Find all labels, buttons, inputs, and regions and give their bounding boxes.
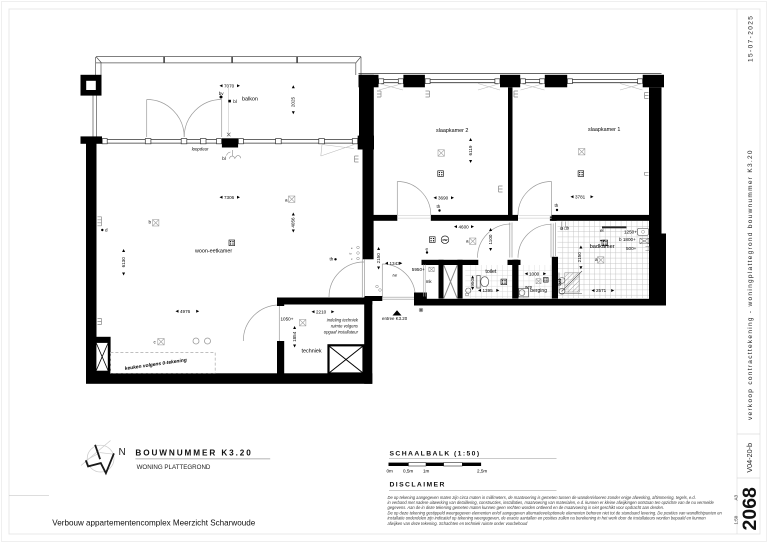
svg-text:Verbouw appartementencomplex M: Verbouw appartementencomplex Meerzicht S… bbox=[52, 519, 255, 528]
svg-text:WONING PLATTEGROND: WONING PLATTEGROND bbox=[137, 464, 211, 471]
svg-text:SCHAALBALK (1:50): SCHAALBALK (1:50) bbox=[390, 451, 481, 458]
svg-text:3781: 3781 bbox=[575, 195, 586, 200]
svg-text:950: 950 bbox=[470, 279, 475, 287]
svg-text:b 1800+: b 1800+ bbox=[619, 237, 636, 242]
svg-text:woon-eetkamer: woon-eetkamer bbox=[194, 249, 232, 255]
svg-text:1250+: 1250+ bbox=[624, 229, 637, 234]
svg-text:RW: RW bbox=[443, 238, 448, 242]
svg-text:2025: 2025 bbox=[291, 96, 296, 107]
svg-text:wm: wm bbox=[525, 284, 532, 289]
svg-text:opgaaf installateur: opgaaf installateur bbox=[324, 330, 359, 335]
svg-text:7070: 7070 bbox=[224, 83, 235, 88]
svg-text:verkoop contracttekening - won: verkoop contracttekening - woningplatteg… bbox=[747, 149, 754, 420]
svg-text:b: b bbox=[567, 225, 570, 230]
svg-text:2068: 2068 bbox=[739, 487, 761, 531]
svg-text:el: el bbox=[600, 228, 604, 233]
svg-text:th: th bbox=[555, 203, 559, 208]
svg-text:b: b bbox=[149, 220, 152, 225]
svg-text:th: th bbox=[437, 204, 441, 209]
svg-text:bl: bl bbox=[233, 99, 237, 104]
svg-text:6130: 6130 bbox=[121, 257, 126, 268]
svg-text:bv: bv bbox=[219, 91, 225, 96]
svg-text:a: a bbox=[595, 257, 598, 262]
svg-text:1343: 1343 bbox=[390, 261, 401, 266]
svg-text:4600: 4600 bbox=[459, 224, 470, 229]
svg-text:4056: 4056 bbox=[291, 217, 296, 228]
svg-text:DISCLAIMER: DISCLAIMER bbox=[390, 482, 446, 489]
svg-text:N: N bbox=[119, 447, 126, 458]
svg-text:1000: 1000 bbox=[529, 271, 540, 276]
svg-text:balkon: balkon bbox=[242, 96, 258, 102]
svg-text:entree K3.20: entree K3.20 bbox=[382, 316, 408, 321]
svg-text:hal: hal bbox=[393, 274, 398, 278]
svg-text:e: e bbox=[426, 247, 429, 252]
svg-text:1395: 1395 bbox=[483, 288, 494, 293]
svg-text:ruimte volgens: ruimte volgens bbox=[331, 324, 359, 329]
svg-text:a: a bbox=[561, 225, 564, 230]
svg-text:afwijken van deze tekening. Sc: afwijken van deze tekening. Schachten en… bbox=[388, 521, 528, 526]
svg-text:th: th bbox=[330, 257, 334, 262]
svg-text:1m: 1m bbox=[423, 469, 430, 474]
svg-text:a: a bbox=[285, 198, 288, 203]
svg-text:1050+: 1050+ bbox=[281, 316, 294, 321]
svg-text:badkamer: badkamer bbox=[590, 244, 615, 250]
svg-text:a: a bbox=[466, 239, 469, 244]
svg-text:0m: 0m bbox=[387, 469, 394, 474]
svg-text:4976: 4976 bbox=[180, 309, 191, 314]
svg-text:V04-20-b: V04-20-b bbox=[745, 443, 754, 473]
svg-text:2150: 2150 bbox=[577, 252, 582, 263]
svg-text:6119: 6119 bbox=[468, 145, 473, 155]
svg-text:BOUWNUMMER K3.20: BOUWNUMMER K3.20 bbox=[135, 448, 252, 457]
svg-text:5950+: 5950+ bbox=[412, 267, 425, 272]
svg-text:2,5m: 2,5m bbox=[477, 469, 487, 474]
svg-text:500+: 500+ bbox=[626, 246, 637, 251]
svg-text:7306: 7306 bbox=[224, 195, 235, 200]
svg-text:loopdeur: loopdeur bbox=[192, 146, 209, 151]
svg-text:2571: 2571 bbox=[596, 288, 607, 293]
svg-text:bl: bl bbox=[222, 156, 226, 161]
svg-text:1100: 1100 bbox=[488, 234, 493, 244]
svg-text:mk: mk bbox=[426, 279, 433, 284]
svg-text:toilet: toilet bbox=[485, 269, 497, 275]
svg-text:indeling techniek: indeling techniek bbox=[327, 317, 359, 322]
svg-text:slaapkamer 2: slaapkamer 2 bbox=[436, 128, 468, 134]
svg-text:berging: berging bbox=[530, 288, 547, 294]
svg-text:3690: 3690 bbox=[438, 196, 449, 201]
svg-text:techniek: techniek bbox=[302, 349, 322, 355]
svg-text:d: d bbox=[105, 228, 108, 233]
svg-text:0,5m: 0,5m bbox=[403, 469, 413, 474]
svg-text:1854: 1854 bbox=[292, 331, 297, 342]
svg-text:1:50: 1:50 bbox=[734, 515, 739, 524]
svg-text:2150: 2150 bbox=[376, 253, 381, 264]
svg-text:2210: 2210 bbox=[316, 309, 327, 314]
svg-text:15-07-2025: 15-07-2025 bbox=[748, 15, 755, 62]
svg-text:slaapkamer 1: slaapkamer 1 bbox=[588, 127, 620, 133]
svg-text:A3: A3 bbox=[734, 494, 739, 500]
